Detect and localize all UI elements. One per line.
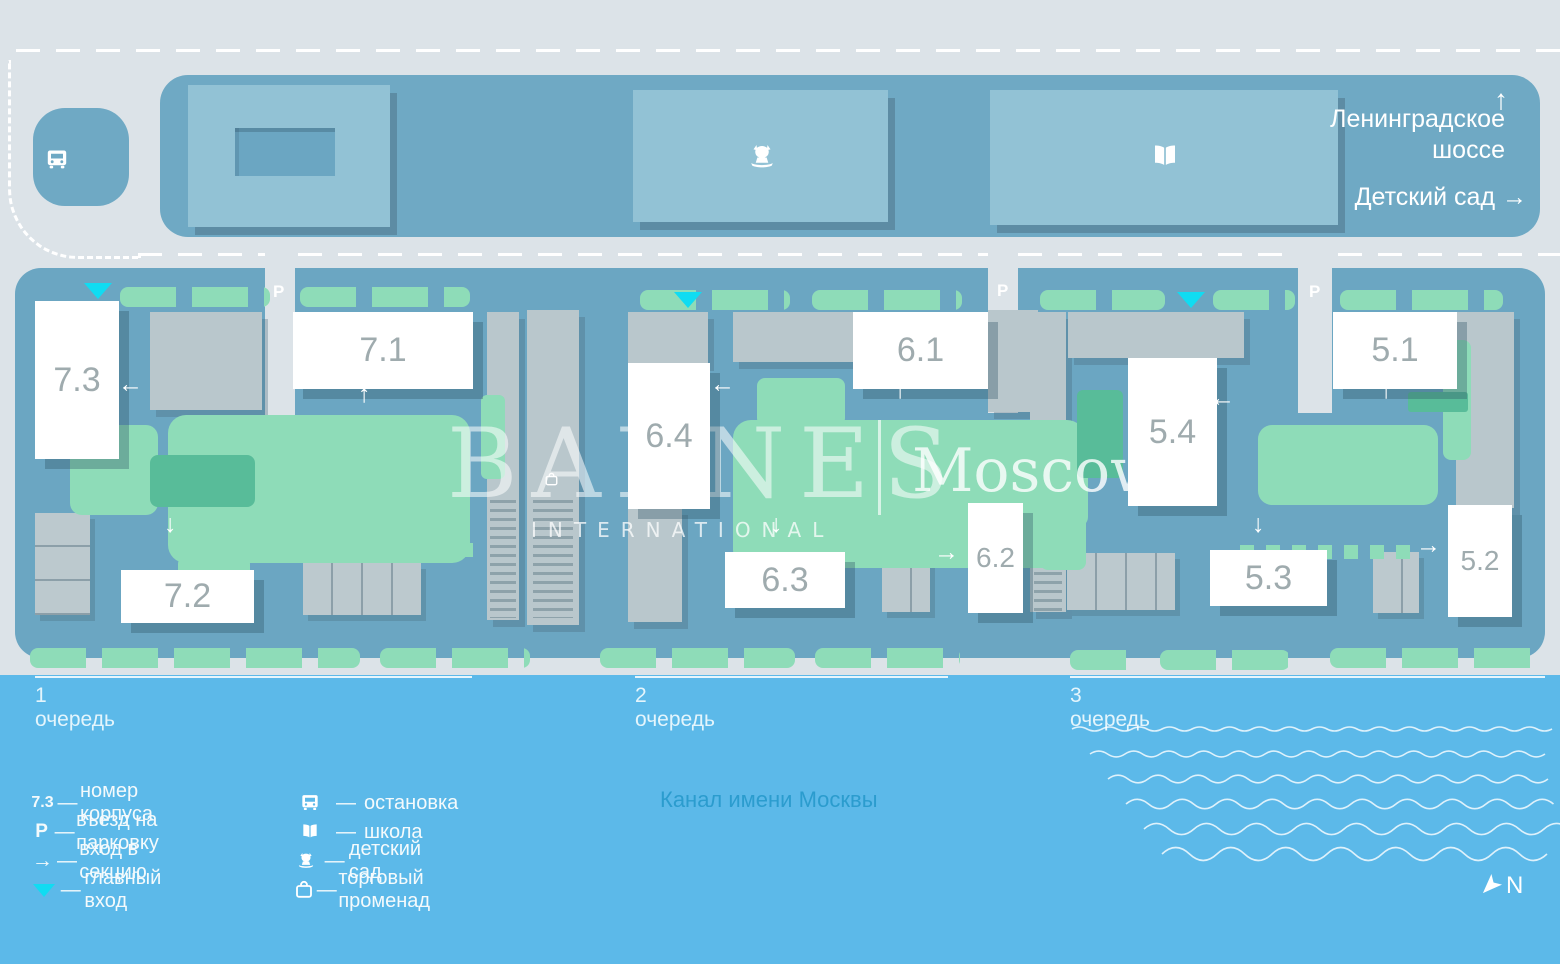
building-7.1[interactable]: 7.1 (293, 312, 473, 389)
kindergarten-icon (292, 851, 320, 871)
compass-arrow-icon (1473, 869, 1507, 903)
parking-access-road (1298, 253, 1332, 413)
legend-label: главный вход (84, 867, 179, 913)
section-entrance-arrow: ← (1210, 386, 1235, 411)
section-entrance-arrow: ↑ (358, 382, 371, 407)
parking-entrance-marker: P (1309, 282, 1320, 302)
planter-row (303, 543, 473, 557)
section-entrance-arrow: → (1416, 533, 1441, 558)
phase-label: 2 очередь (635, 684, 715, 732)
kindergarten-direction-label: Детский сад (1355, 183, 1495, 211)
section-entrance-arrow: → (934, 540, 959, 565)
phase-label: 1 очередь (35, 684, 115, 732)
phase-divider-line (35, 676, 472, 678)
bush-row (1213, 290, 1295, 310)
school-icon (1150, 142, 1180, 172)
bush-row (640, 290, 790, 310)
storage-row (35, 513, 90, 615)
lawn (1258, 425, 1438, 505)
legend-label: остановка (364, 792, 458, 815)
gray-building (150, 312, 262, 410)
embankment-bush-row (30, 648, 360, 668)
gray-building (733, 312, 858, 362)
building-5.3[interactable]: 5.3 (1210, 550, 1327, 606)
main-entrance-marker (84, 283, 112, 299)
phase-divider-line (1070, 676, 1545, 678)
brand-watermark-division: INTERNATIONAL (531, 518, 834, 542)
legend-dash: — (315, 879, 338, 902)
section-entrance-arrow: ↑ (894, 378, 907, 403)
embankment-bush-row (1330, 648, 1545, 668)
legend-dash: — (57, 879, 84, 902)
section-entrance-arrow: ↓ (1252, 512, 1265, 537)
highway-label-line1: Ленинградское (1185, 104, 1505, 135)
bus-stop-icon (45, 148, 69, 172)
building-7.3[interactable]: 7.3 (35, 301, 119, 459)
parking-access-road (265, 253, 295, 423)
lawn (1408, 392, 1468, 412)
legend-row: —торговый променад (292, 877, 456, 903)
embankment-bush-row (380, 648, 530, 668)
section-entrance-arrow: ↑ (1380, 378, 1393, 403)
bush-row (300, 287, 470, 307)
section-entrance-arrow: ↓ (164, 512, 177, 537)
bush-row (1040, 290, 1165, 310)
canal-label: Канал имени Москвы (660, 787, 878, 813)
section-entrance-legend-icon: → (32, 849, 53, 873)
building-5.4[interactable]: 5.4 (1128, 358, 1217, 506)
highway-label-line2: шоссе (1185, 135, 1505, 166)
building-6.1[interactable]: 6.1 (853, 312, 988, 389)
legend-dash: — (328, 792, 364, 815)
section-entrance-arrow: ← (710, 372, 735, 397)
bush-row (812, 290, 962, 310)
parking-entrance-marker: P (997, 281, 1008, 301)
legend-dash: — (53, 821, 76, 844)
brand-watermark-divider (878, 420, 881, 515)
storage-row (1373, 552, 1419, 613)
brand-watermark-city: Moscow (912, 436, 1161, 506)
legend-symbol: P (35, 821, 48, 843)
road-dashed-line-bottom (138, 253, 1560, 256)
kindergarten-icon (747, 142, 777, 172)
storage-row (303, 563, 421, 615)
school-icon (292, 822, 328, 842)
legend-dash: — (55, 850, 80, 873)
masterplan-map: ↑ Ленинградское шоссе Детский сад → BARN… (0, 0, 1560, 964)
legend-row: —остановка (292, 790, 458, 816)
building-5.1[interactable]: 5.1 (1333, 312, 1457, 389)
main-entrance-marker (1177, 292, 1205, 308)
legend-row: —главный вход (30, 877, 179, 903)
embankment-bush-row (600, 648, 795, 668)
section-entrance-arrow: ↓ (770, 512, 783, 537)
water-waves (1060, 715, 1560, 875)
promenade-icon (544, 472, 559, 487)
promenade-icon (292, 880, 315, 900)
building-7.2[interactable]: 7.2 (121, 570, 254, 623)
gray-building (1068, 312, 1244, 358)
legend-symbol: 7.3 (31, 794, 53, 812)
embankment-bush-row (815, 648, 960, 668)
building-6.2[interactable]: 6.2 (968, 503, 1023, 613)
bush-row (1340, 290, 1503, 310)
building-6.4[interactable]: 6.4 (628, 363, 710, 509)
main-entrance-marker (674, 292, 702, 308)
section-entrance-arrow: ← (118, 372, 143, 397)
phase-divider-line (635, 676, 948, 678)
main-entrance-legend-icon (33, 884, 55, 897)
gray-building (628, 312, 708, 364)
compass: N (1478, 872, 1523, 900)
bush-row (120, 287, 270, 307)
parking-entrance-marker: P (273, 282, 284, 302)
highway-label: Ленинградское шоссе (1185, 104, 1505, 166)
lawn (150, 455, 255, 507)
arrow-right-icon: → (1502, 183, 1527, 211)
neighbor-building-courtyard (235, 128, 335, 176)
bus-icon (292, 793, 328, 813)
building-6.3[interactable]: 6.3 (725, 552, 845, 608)
embankment-bush-row (1070, 650, 1140, 670)
legend-label: торговый променад (338, 867, 455, 913)
compass-label: N (1506, 872, 1523, 900)
building-5.2[interactable]: 5.2 (1448, 505, 1512, 617)
road-dashed-line-top (16, 49, 1560, 52)
kindergarten-direction: Детский сад → (1355, 182, 1527, 213)
embankment-bush-row (1160, 650, 1290, 670)
